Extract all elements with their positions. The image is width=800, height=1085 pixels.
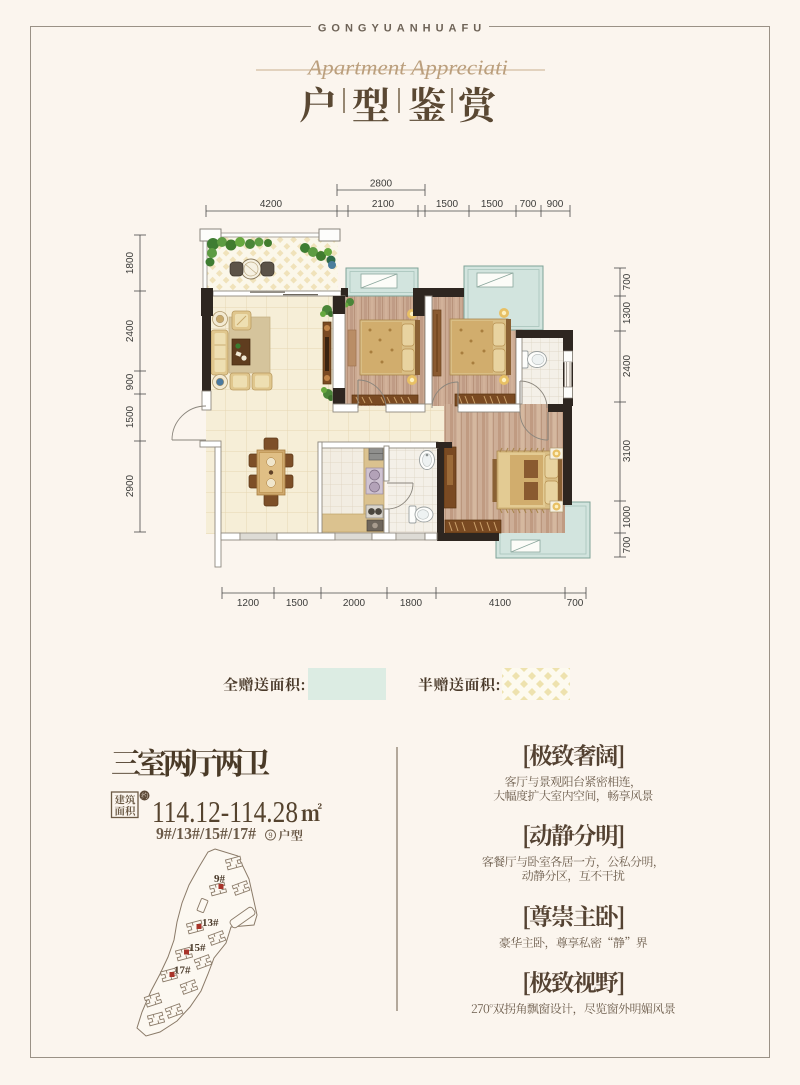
svg-text:2400: 2400 <box>622 354 633 377</box>
svg-text:700: 700 <box>622 273 633 290</box>
svg-text:15#: 15# <box>189 942 206 954</box>
svg-text:900: 900 <box>125 373 136 390</box>
svg-text:2800: 2800 <box>370 179 393 190</box>
svg-text:Apartment Appreciati: Apartment Appreciati <box>306 56 508 80</box>
svg-text:2000: 2000 <box>343 598 366 609</box>
svg-text:900: 900 <box>547 199 564 210</box>
svg-text:9#/13#/15#/17#: 9#/13#/15#/17# <box>156 824 256 843</box>
svg-text:1800: 1800 <box>400 598 423 609</box>
svg-text:700: 700 <box>622 536 633 553</box>
svg-text:4100: 4100 <box>489 598 512 609</box>
svg-text:9#: 9# <box>214 873 226 885</box>
svg-text:1800: 1800 <box>125 251 136 274</box>
svg-text:GONGYUANHUAFU: GONGYUANHUAFU <box>318 23 486 35</box>
svg-text:2400: 2400 <box>125 319 136 342</box>
svg-text:2100: 2100 <box>372 199 395 210</box>
svg-text:1000: 1000 <box>622 505 633 528</box>
svg-text:13#: 13# <box>202 917 219 929</box>
svg-text:700: 700 <box>567 598 584 609</box>
svg-text:1500: 1500 <box>125 405 136 428</box>
svg-text:700: 700 <box>520 199 537 210</box>
svg-text:1500: 1500 <box>481 199 504 210</box>
svg-text:1500: 1500 <box>436 199 459 210</box>
svg-text:17#: 17# <box>174 965 191 977</box>
svg-text:9: 9 <box>269 831 273 840</box>
svg-text:1200: 1200 <box>237 598 260 609</box>
svg-text:1500: 1500 <box>286 598 309 609</box>
svg-text:4200: 4200 <box>260 199 283 210</box>
svg-text:2900: 2900 <box>125 474 136 497</box>
svg-text:3100: 3100 <box>622 439 633 462</box>
svg-text:1300: 1300 <box>622 301 633 324</box>
